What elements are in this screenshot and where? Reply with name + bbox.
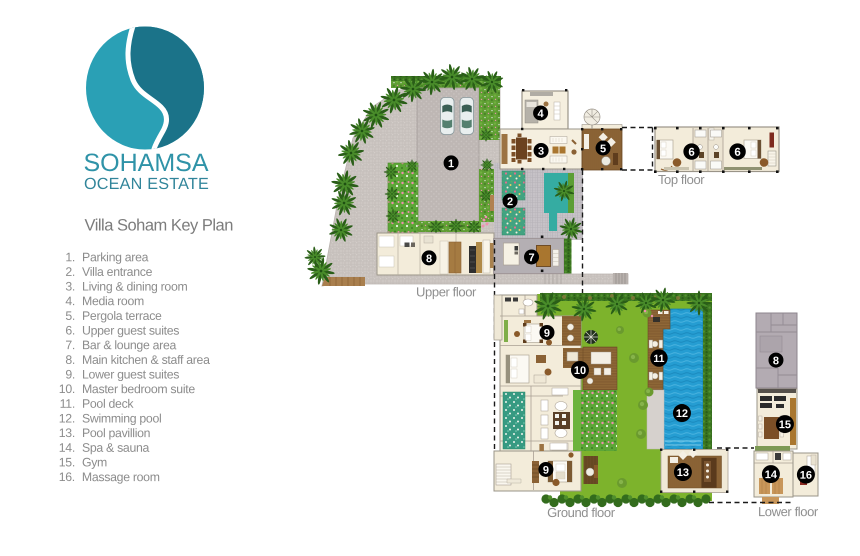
svg-text:12.: 12. [59, 411, 75, 425]
svg-text:6.: 6. [65, 324, 75, 338]
svg-text:1.: 1. [65, 250, 75, 264]
svg-text:9: 9 [544, 328, 550, 340]
svg-text:Top floor: Top floor [658, 172, 705, 187]
svg-text:6: 6 [734, 147, 740, 159]
svg-text:8: 8 [426, 253, 432, 265]
svg-text:Upper guest suites: Upper guest suites [82, 324, 179, 338]
svg-text:16.: 16. [59, 470, 75, 484]
svg-text:8: 8 [773, 355, 779, 367]
svg-text:7.: 7. [65, 338, 75, 352]
svg-text:10: 10 [574, 365, 586, 377]
svg-text:11.: 11. [60, 397, 75, 411]
svg-text:4: 4 [538, 108, 545, 120]
svg-text:Massage room: Massage room [82, 470, 160, 484]
svg-text:11: 11 [653, 353, 664, 365]
svg-text:Villa Soham Key Plan: Villa Soham Key Plan [85, 216, 234, 234]
svg-text:6: 6 [688, 147, 694, 159]
svg-text:2: 2 [507, 196, 513, 208]
svg-text:Media room: Media room [82, 294, 144, 308]
svg-text:14.: 14. [59, 441, 75, 455]
svg-text:Lower guest suites: Lower guest suites [82, 367, 179, 381]
svg-text:Spa & sauna: Spa & sauna [82, 441, 150, 455]
svg-text:Master bedroom suite: Master bedroom suite [82, 382, 195, 396]
svg-text:1: 1 [448, 158, 454, 170]
svg-text:13: 13 [677, 467, 689, 479]
svg-text:5: 5 [600, 143, 606, 155]
svg-text:Living & dining room: Living & dining room [82, 280, 187, 294]
svg-text:9.: 9. [65, 367, 75, 381]
svg-text:15: 15 [779, 419, 791, 431]
svg-text:8.: 8. [65, 353, 75, 367]
svg-text:2.: 2. [65, 265, 75, 279]
svg-text:10.: 10. [59, 382, 75, 396]
svg-text:SOHAMSA: SOHAMSA [83, 149, 208, 177]
svg-text:12: 12 [676, 408, 688, 420]
svg-text:Main kitchen & staff area: Main kitchen & staff area [82, 353, 210, 367]
svg-text:Villa entrance: Villa entrance [82, 265, 153, 279]
svg-text:13.: 13. [59, 426, 75, 440]
svg-text:Lower floor: Lower floor [758, 504, 819, 519]
svg-text:9: 9 [543, 465, 549, 477]
svg-text:Pool deck: Pool deck [82, 397, 134, 411]
svg-text:14: 14 [765, 469, 778, 481]
svg-text:Pergola terrace: Pergola terrace [82, 309, 162, 323]
svg-text:7: 7 [528, 252, 534, 264]
svg-text:Parking area: Parking area [82, 250, 149, 264]
svg-text:3.: 3. [65, 280, 75, 294]
svg-text:Bar & lounge area: Bar & lounge area [82, 338, 176, 352]
svg-text:Upper floor: Upper floor [416, 284, 477, 299]
svg-text:5.: 5. [65, 309, 75, 323]
svg-text:Swimming pool: Swimming pool [82, 411, 161, 425]
svg-text:16: 16 [800, 470, 812, 482]
svg-text:Gym: Gym [82, 455, 107, 469]
svg-text:3: 3 [538, 146, 544, 158]
svg-text:Pool pavillion: Pool pavillion [82, 426, 151, 440]
svg-text:Ground floor: Ground floor [547, 505, 616, 520]
svg-text:15.: 15. [59, 455, 75, 469]
svg-text:4.: 4. [65, 294, 75, 308]
svg-text:OCEAN ESTATE: OCEAN ESTATE [84, 175, 209, 193]
